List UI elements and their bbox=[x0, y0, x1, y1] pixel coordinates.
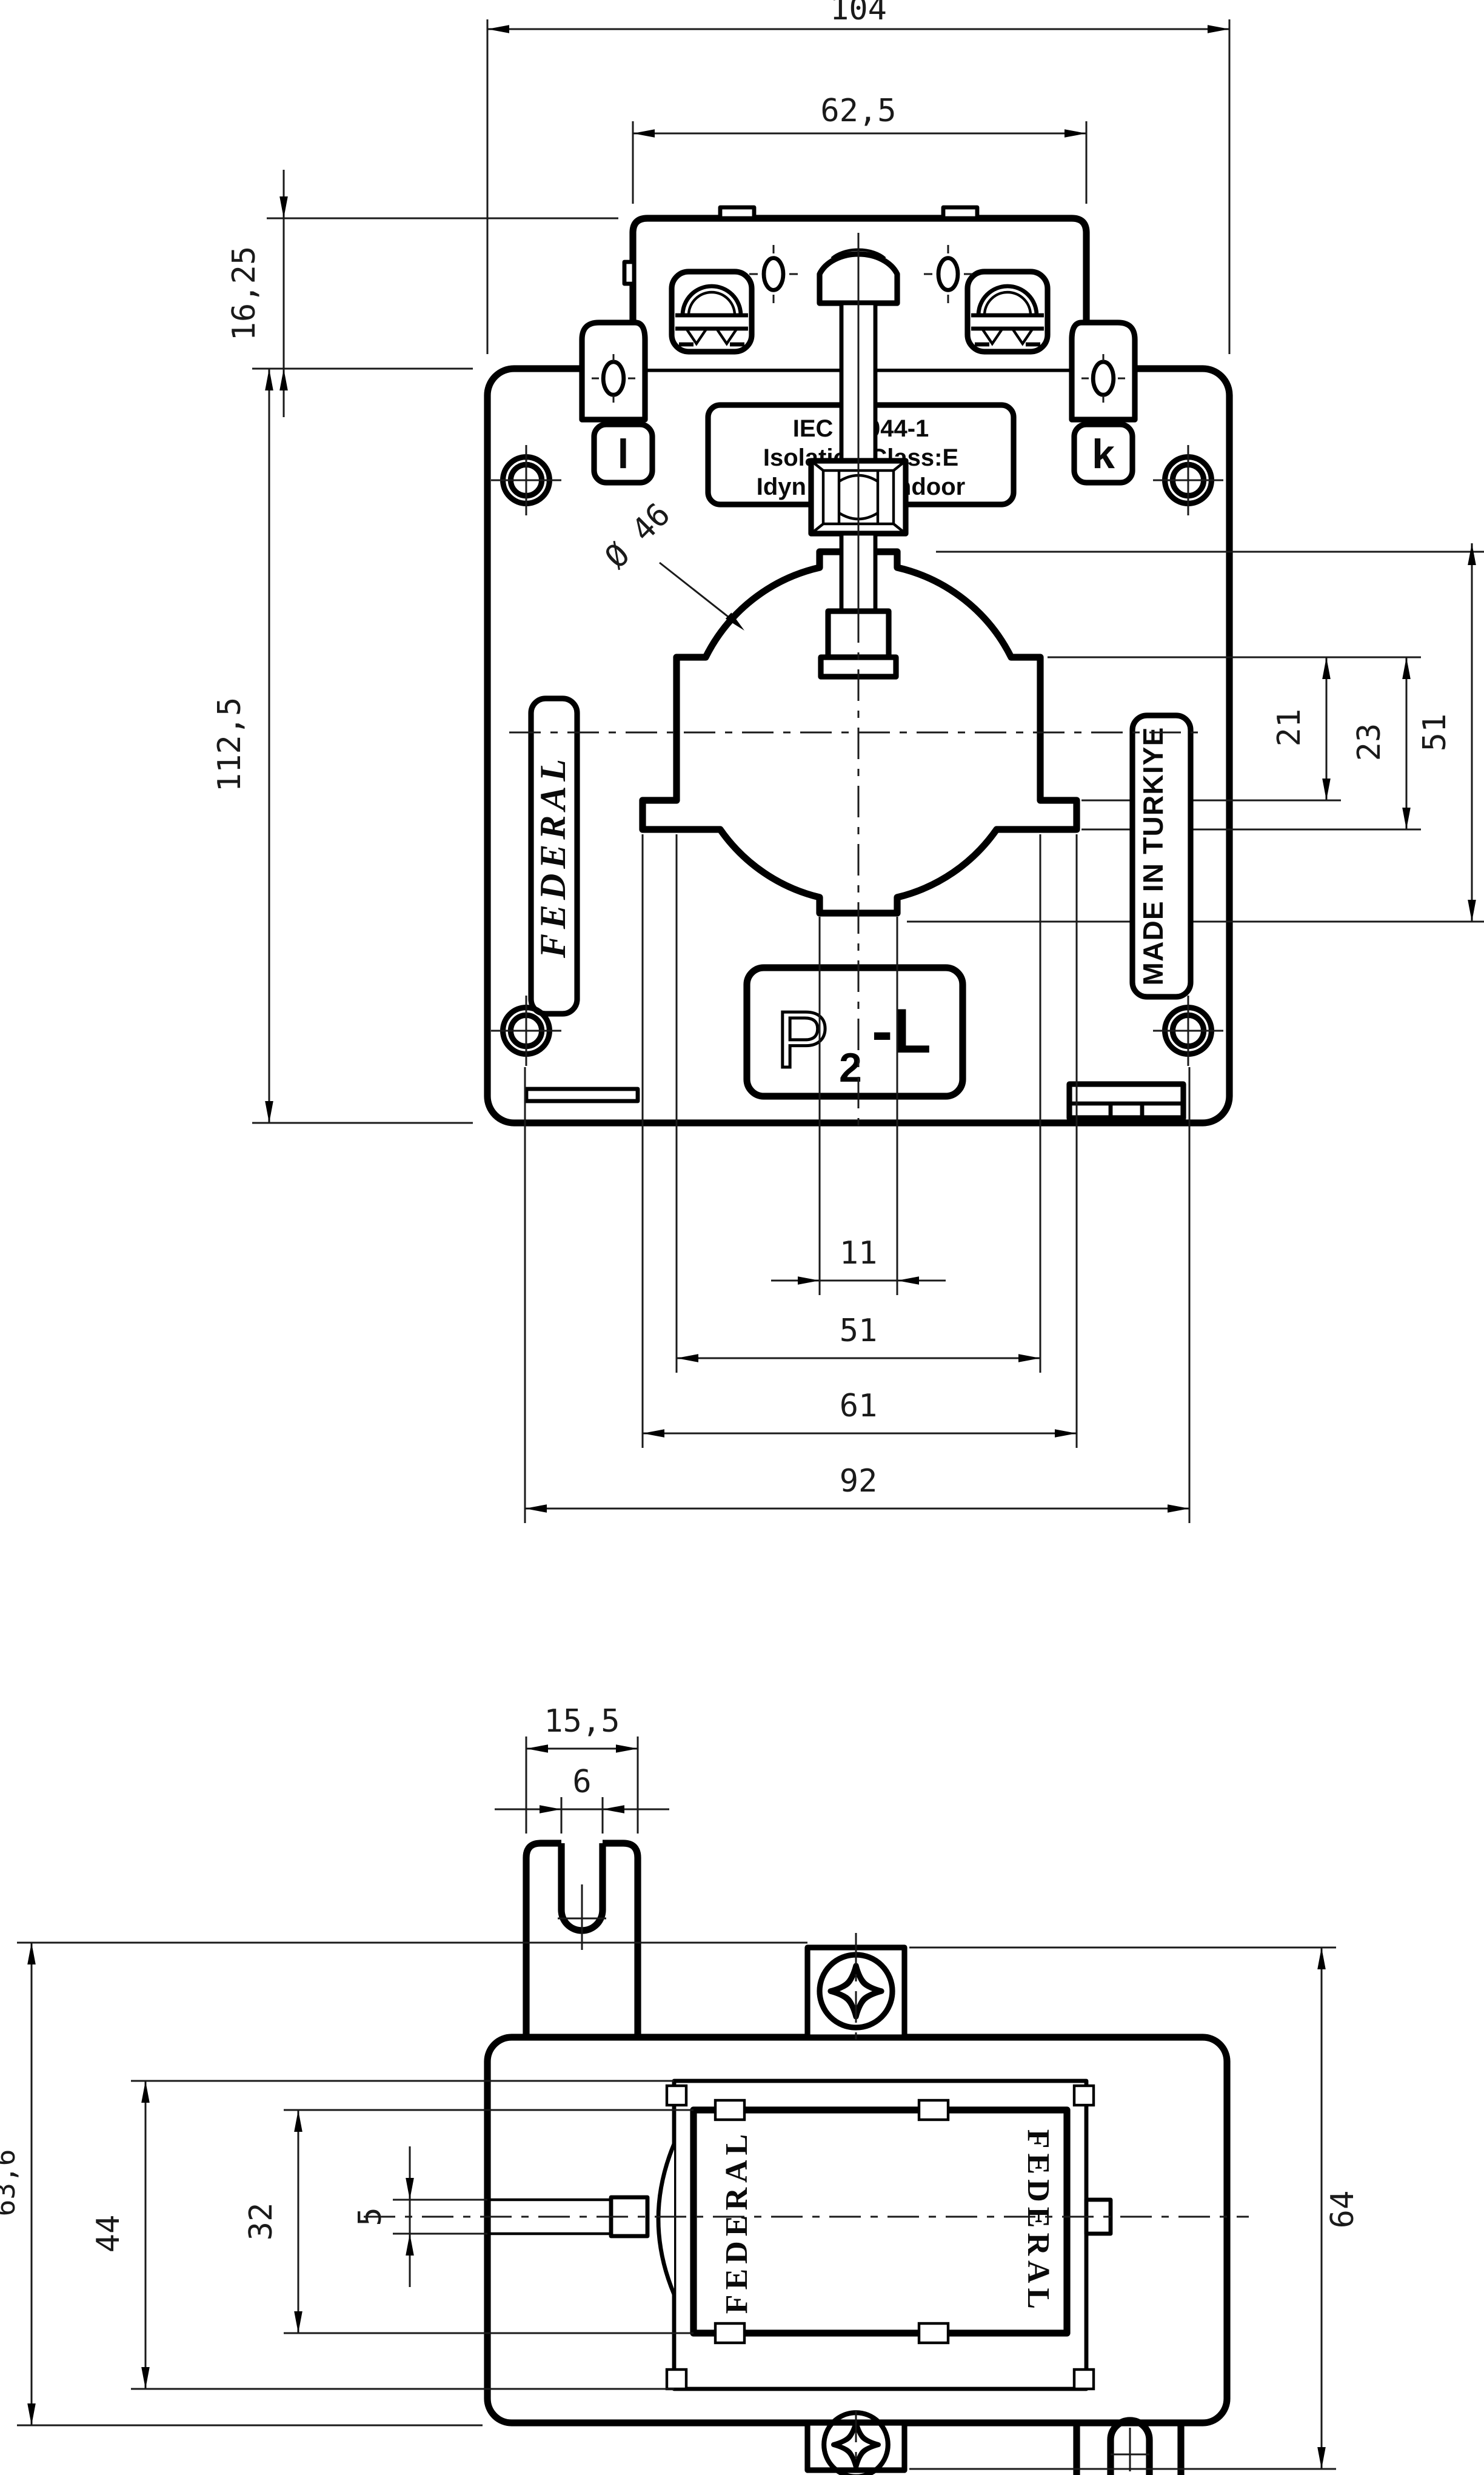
drawing-sheet: IEC 60044-1 Isolation Class:E Idyn:2.5xI… bbox=[0, 0, 1484, 2475]
polarity-plate: P 2 -L bbox=[747, 968, 963, 1096]
dim-window-width: 51 bbox=[840, 1313, 878, 1349]
dim-bracket-width: 62,5 bbox=[820, 93, 896, 129]
dim-step-width: 61 bbox=[840, 1388, 878, 1424]
dim-bracket-height: 16,25 bbox=[226, 246, 262, 341]
polarity-tail: -L bbox=[872, 996, 931, 1067]
top-left-tab bbox=[526, 1843, 638, 2040]
dim-window-height: 32 bbox=[243, 2203, 279, 2241]
dim-slot-width: 6 bbox=[572, 1764, 591, 1800]
dim-body-height-side: 64 bbox=[1325, 2191, 1361, 2229]
brand-text-bottom-left: FEDERAL bbox=[720, 2129, 754, 2314]
bottom-right-tab bbox=[1077, 2420, 1181, 2475]
brand-plate-front: FEDERAL bbox=[531, 698, 577, 1014]
terminal-k-label: k bbox=[1092, 431, 1115, 477]
dim-window-upper: 21 bbox=[1271, 709, 1308, 747]
dim-body-height: 112,5 bbox=[212, 697, 248, 792]
dim-blade-thickness: 5 bbox=[352, 2207, 389, 2226]
polarity-p: P bbox=[776, 995, 829, 1084]
dim-tab-width: 15,5 bbox=[544, 1703, 620, 1740]
dim-overall-width: 104 bbox=[830, 0, 887, 27]
bottom-view: FEDERAL FEDERAL 15,5 bbox=[0, 1703, 1361, 2475]
right-rail-clip bbox=[1069, 1084, 1183, 1118]
dim-hole-spacing: 92 bbox=[840, 1463, 878, 1499]
technical-drawing: IEC 60044-1 Isolation Class:E Idyn:2.5xI… bbox=[0, 0, 1484, 2475]
dim-window-lower: 23 bbox=[1351, 723, 1388, 762]
dim-window-side: 51 bbox=[1417, 714, 1453, 752]
dim-notch-width: 11 bbox=[840, 1235, 878, 1271]
dim-frame-height: 44 bbox=[90, 2215, 127, 2253]
right-ear bbox=[1072, 323, 1135, 420]
brand-text-front: FEDERAL bbox=[533, 754, 573, 959]
origin-plate: MADE IN TURKIYE bbox=[1132, 715, 1191, 997]
brand-text-bottom-right: FEDERAL bbox=[1021, 2129, 1055, 2314]
coil-frame: FEDERAL FEDERAL bbox=[667, 2081, 1094, 2389]
left-ear bbox=[582, 323, 645, 420]
dim-overall-height: 63,6 bbox=[0, 2149, 21, 2217]
left-foot bbox=[526, 1089, 638, 1101]
front-view: IEC 60044-1 Isolation Class:E Idyn:2.5xI… bbox=[212, 0, 1484, 1523]
terminal-l-label: l bbox=[618, 431, 629, 477]
origin-text: MADE IN TURKIYE bbox=[1137, 727, 1169, 986]
